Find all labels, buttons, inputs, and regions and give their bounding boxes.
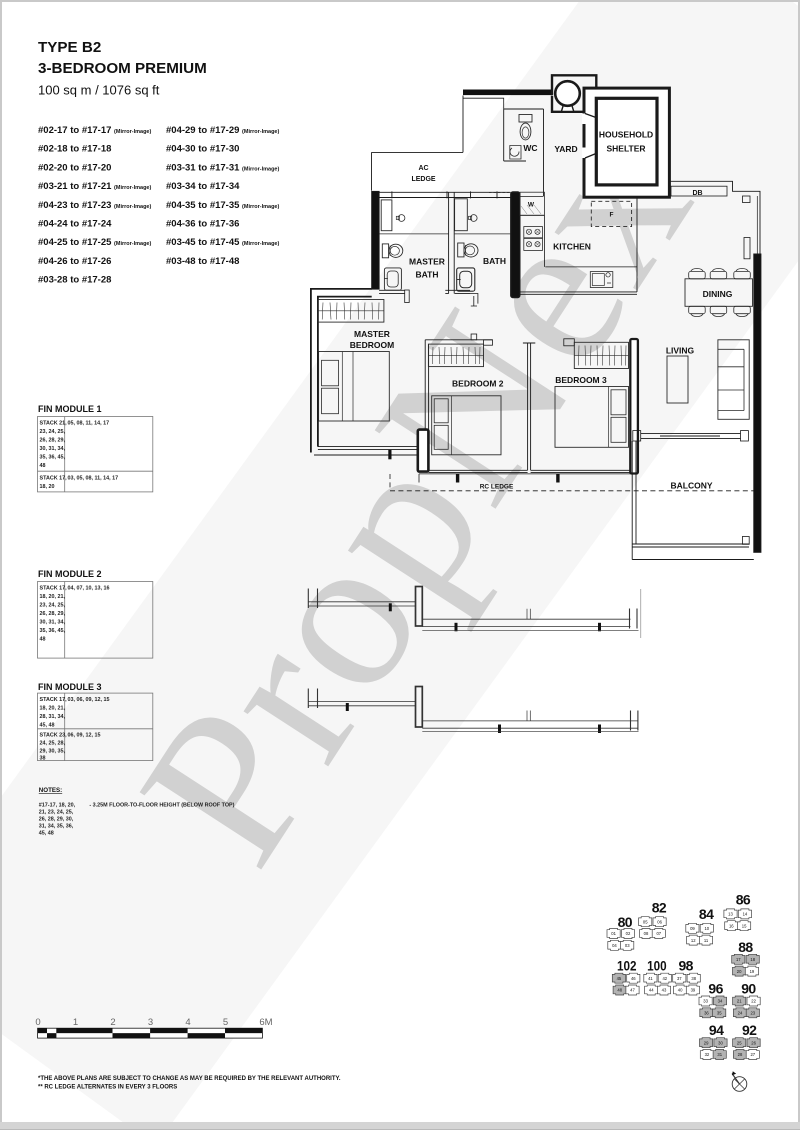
svg-text:39: 39 [691, 988, 696, 993]
svg-text:26, 28, 29, 30,: 26, 28, 29, 30, [39, 817, 74, 823]
svg-text:*THE ABOVE PLANS ARE SUBJECT T: *THE ABOVE PLANS ARE SUBJECT TO CHANGE A… [38, 1076, 341, 1082]
svg-text:FIN MODULE 2: FIN MODULE 2 [38, 569, 102, 579]
svg-text:23, 24, 25,: 23, 24, 25, [40, 429, 66, 435]
svg-text:SHELTER: SHELTER [606, 144, 645, 154]
svg-text:28, 31, 34,: 28, 31, 34, [40, 714, 66, 720]
svg-text:35: 35 [717, 1011, 722, 1016]
svg-text:03, 06, 09, 12, 15: 03, 06, 09, 12, 15 [68, 697, 110, 703]
svg-text:#02-18 to #17-18: #02-18 to #17-18 [38, 144, 111, 155]
svg-text:30, 31, 34,: 30, 31, 34, [40, 446, 66, 452]
svg-text:45: 45 [617, 976, 622, 981]
svg-text:05: 05 [643, 919, 648, 924]
svg-text:16: 16 [729, 923, 734, 928]
svg-text:#02-20 to #17-20: #02-20 to #17-20 [38, 162, 111, 173]
svg-text:44: 44 [649, 988, 654, 993]
svg-text:92: 92 [742, 1022, 757, 1038]
svg-text:2: 2 [110, 1017, 115, 1028]
svg-text:47: 47 [630, 988, 635, 993]
svg-text:29: 29 [704, 1040, 709, 1045]
svg-text:5: 5 [223, 1017, 228, 1028]
svg-text:DB: DB [692, 190, 702, 197]
svg-text:98: 98 [679, 957, 694, 973]
svg-text:23, 24, 25,: 23, 24, 25, [40, 603, 66, 609]
svg-text:#04-26 to #17-26: #04-26 to #17-26 [38, 256, 111, 267]
svg-text:37: 37 [677, 976, 682, 981]
svg-text:26, 28, 29,: 26, 28, 29, [40, 611, 66, 617]
svg-text:BALCONY: BALCONY [670, 481, 712, 491]
svg-text:BATH: BATH [483, 256, 506, 266]
svg-text:HOUSEHOLD: HOUSEHOLD [599, 130, 653, 140]
svg-text:35, 36, 45,: 35, 36, 45, [40, 628, 66, 634]
svg-text:BATH: BATH [416, 270, 439, 280]
svg-text:18: 18 [750, 957, 755, 962]
svg-text:13: 13 [728, 912, 733, 917]
svg-text:100: 100 [647, 957, 667, 973]
svg-text:33: 33 [703, 999, 708, 1004]
svg-text:42: 42 [662, 976, 667, 981]
svg-text:45, 48: 45, 48 [40, 723, 55, 729]
svg-text:31: 31 [717, 1052, 722, 1057]
svg-text:3-BEDROOM PREMIUM: 3-BEDROOM PREMIUM [38, 60, 207, 77]
svg-text:10: 10 [704, 926, 709, 931]
svg-text:31, 34, 35, 36,: 31, 34, 35, 36, [39, 824, 74, 830]
svg-text:32: 32 [705, 1052, 710, 1057]
svg-text:#03-34 to #17-34: #03-34 to #17-34 [166, 181, 240, 192]
svg-text:26: 26 [751, 1040, 756, 1045]
svg-text:28: 28 [738, 1052, 743, 1057]
svg-text:11: 11 [704, 938, 709, 943]
svg-text:AC: AC [418, 165, 428, 172]
svg-text:#03-48 to #17-48: #03-48 to #17-48 [166, 256, 239, 267]
svg-text:RC LEDGE: RC LEDGE [480, 484, 514, 491]
svg-text:#04-36 to #17-36: #04-36 to #17-36 [166, 219, 239, 230]
svg-text:09: 09 [690, 926, 695, 931]
svg-text:FIN MODULE 1: FIN MODULE 1 [38, 404, 102, 414]
svg-text:MASTER: MASTER [409, 257, 445, 267]
svg-text:#03-28 to #17-28: #03-28 to #17-28 [38, 275, 111, 286]
svg-text:06: 06 [657, 919, 662, 924]
svg-text:17: 17 [736, 957, 741, 962]
svg-text:90: 90 [741, 980, 756, 996]
svg-text:14: 14 [743, 912, 748, 917]
svg-text:18, 20, 21,: 18, 20, 21, [40, 594, 66, 600]
svg-text:#04-24 to #17-24: #04-24 to #17-24 [38, 219, 112, 230]
svg-text:KITCHEN: KITCHEN [553, 242, 591, 252]
svg-text:94: 94 [709, 1022, 724, 1038]
svg-text:6M: 6M [259, 1017, 272, 1028]
svg-text:STACK 17,: STACK 17, [40, 697, 68, 703]
svg-text:30: 30 [718, 1040, 723, 1045]
svg-text:45, 48: 45, 48 [39, 831, 54, 837]
svg-text:1: 1 [73, 1017, 78, 1028]
svg-text:48: 48 [40, 463, 46, 469]
svg-text:29, 30, 35,: 29, 30, 35, [40, 749, 66, 755]
svg-text:21, 23, 24, 25,: 21, 23, 24, 25, [39, 810, 74, 816]
svg-text:25: 25 [737, 1040, 742, 1045]
svg-text:STACK 17,: STACK 17, [40, 586, 68, 592]
svg-text:W: W [528, 202, 535, 209]
svg-text:24, 25, 28,: 24, 25, 28, [40, 741, 66, 747]
svg-text:STACK 21,: STACK 21, [40, 421, 68, 427]
svg-text:3: 3 [148, 1017, 153, 1028]
svg-text:WC: WC [523, 143, 537, 153]
svg-text:48: 48 [617, 988, 622, 993]
svg-text:F: F [610, 212, 614, 219]
svg-text:84: 84 [699, 906, 714, 922]
svg-text:FIN MODULE 3: FIN MODULE 3 [38, 682, 102, 692]
svg-text:TYPE B2: TYPE B2 [38, 39, 101, 56]
svg-text:LIVING: LIVING [666, 346, 695, 356]
svg-text:08: 08 [644, 931, 649, 936]
svg-text:27: 27 [750, 1052, 755, 1057]
svg-text:#04-30 to #17-30: #04-30 to #17-30 [166, 144, 239, 155]
svg-text:4: 4 [185, 1017, 190, 1028]
svg-text:86: 86 [736, 892, 751, 908]
svg-text:STACK 23,: STACK 23, [40, 733, 68, 739]
svg-text:38: 38 [40, 756, 46, 762]
svg-text:20: 20 [737, 969, 742, 974]
svg-text:03: 03 [625, 943, 630, 948]
svg-text:23: 23 [750, 1011, 755, 1016]
svg-text:18, 20, 21,: 18, 20, 21, [40, 706, 66, 712]
svg-text:12: 12 [691, 938, 696, 943]
svg-text:** RC LEDGE ALTERNATES IN EVER: ** RC LEDGE ALTERNATES IN EVERY 3 FLOORS [38, 1085, 177, 1091]
svg-text:88: 88 [738, 939, 753, 955]
svg-text:22: 22 [751, 999, 756, 1004]
svg-text:NOTES:: NOTES: [39, 787, 62, 794]
svg-text:80: 80 [618, 914, 633, 930]
svg-text:82: 82 [652, 900, 667, 916]
svg-text:STACK 17,: STACK 17, [40, 476, 68, 482]
svg-text:03, 05, 08, 11, 14, 17: 03, 05, 08, 11, 14, 17 [68, 476, 119, 482]
svg-text:102: 102 [617, 957, 637, 973]
svg-text:04, 07, 10, 13, 16: 04, 07, 10, 13, 16 [68, 586, 110, 592]
svg-text:36: 36 [704, 1011, 709, 1016]
svg-text:46: 46 [631, 976, 636, 981]
svg-text:DINING: DINING [703, 289, 733, 299]
svg-text:LEDGE: LEDGE [411, 176, 435, 183]
svg-text:100 sq m / 1076 sq ft: 100 sq m / 1076 sq ft [38, 83, 160, 98]
svg-text:21: 21 [737, 999, 742, 1004]
svg-text:35, 36, 45,: 35, 36, 45, [40, 455, 66, 461]
svg-text:0: 0 [35, 1017, 40, 1028]
svg-text:BEDROOM 2: BEDROOM 2 [452, 379, 504, 389]
svg-text:41: 41 [648, 976, 653, 981]
svg-text:43: 43 [662, 988, 667, 993]
svg-text:40: 40 [678, 988, 683, 993]
svg-text:96: 96 [708, 980, 723, 996]
svg-text:34: 34 [718, 999, 723, 1004]
svg-text:06, 09, 12, 15: 06, 09, 12, 15 [68, 733, 101, 739]
svg-text:07: 07 [656, 931, 661, 936]
svg-text:38: 38 [691, 976, 696, 981]
svg-text:48: 48 [40, 637, 46, 643]
svg-text:- 3.25M FLOOR-TO-FLOOR HEIGHT: - 3.25M FLOOR-TO-FLOOR HEIGHT (BELOW ROO… [89, 803, 234, 809]
svg-text:19: 19 [750, 969, 755, 974]
svg-text:MASTER: MASTER [354, 329, 390, 339]
svg-text:24: 24 [738, 1011, 743, 1016]
svg-text:26, 28, 29,: 26, 28, 29, [40, 438, 66, 444]
svg-text:05, 08, 11, 14, 17: 05, 08, 11, 14, 17 [68, 421, 110, 427]
svg-text:15: 15 [742, 923, 747, 928]
svg-text:BEDROOM: BEDROOM [350, 340, 394, 350]
svg-text:BEDROOM 3: BEDROOM 3 [555, 375, 607, 385]
svg-text:30, 31, 34,: 30, 31, 34, [40, 620, 66, 626]
svg-text:#17-17, 18, 20,: #17-17, 18, 20, [39, 803, 76, 809]
svg-text:01: 01 [611, 931, 616, 936]
svg-text:18, 20: 18, 20 [40, 484, 55, 490]
svg-text:YARD: YARD [554, 144, 577, 154]
svg-text:04: 04 [612, 943, 617, 948]
svg-text:02: 02 [626, 931, 631, 936]
